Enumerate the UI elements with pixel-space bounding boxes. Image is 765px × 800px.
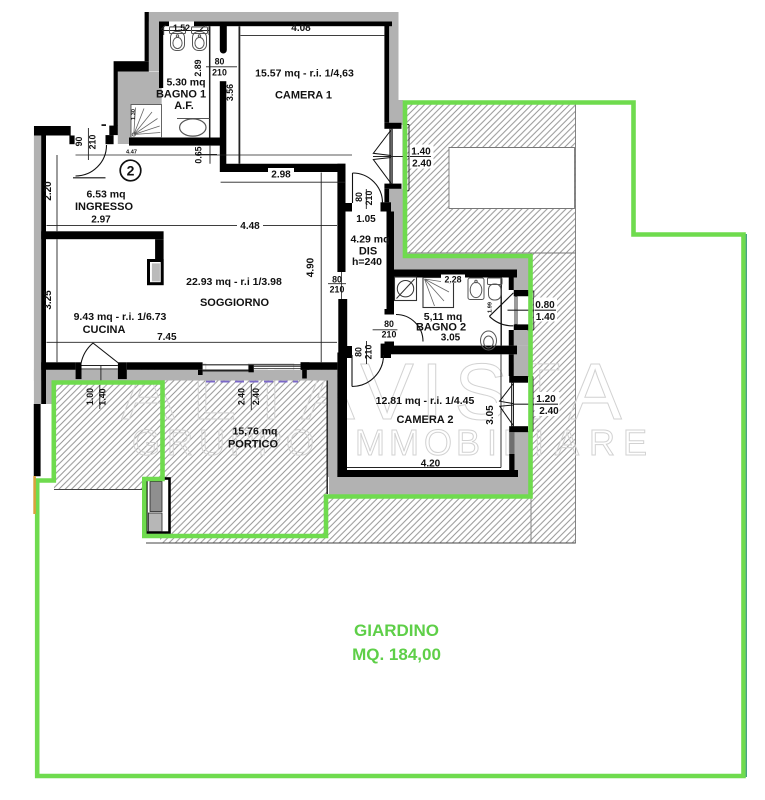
svg-text:O: O	[286, 422, 314, 463]
svg-text:1.99: 1.99	[488, 302, 494, 313]
svg-text:1.05: 1.05	[356, 214, 376, 225]
svg-text:INGRESSO: INGRESSO	[75, 201, 134, 213]
svg-text:4.29 mq: 4.29 mq	[350, 234, 389, 246]
svg-text:1.40: 1.40	[411, 147, 431, 158]
svg-text:1.30: 1.30	[131, 109, 137, 120]
svg-text:1.20: 1.20	[536, 394, 556, 405]
svg-text:3.56: 3.56	[225, 84, 235, 101]
svg-text:210: 210	[382, 329, 397, 339]
svg-text:1.00: 1.00	[85, 388, 95, 405]
svg-text:4.48: 4.48	[240, 221, 260, 232]
svg-text:2.40: 2.40	[412, 159, 432, 170]
svg-text:5.30 mq: 5.30 mq	[166, 77, 205, 89]
svg-text:h=240: h=240	[352, 256, 382, 268]
svg-text:E: E	[623, 422, 647, 463]
svg-text:15,76 mq: 15,76 mq	[233, 426, 278, 438]
svg-text:1.40: 1.40	[98, 388, 108, 405]
svg-text:0.65: 0.65	[193, 146, 203, 163]
svg-text:7.45: 7.45	[157, 332, 177, 343]
svg-text:R: R	[167, 422, 193, 463]
svg-text:2.40: 2.40	[237, 388, 247, 405]
svg-text:2.40: 2.40	[539, 406, 559, 417]
svg-text:2.97: 2.97	[91, 215, 111, 226]
svg-text:4.08: 4.08	[291, 23, 311, 34]
svg-text:I: I	[534, 422, 544, 463]
svg-text:M: M	[389, 422, 419, 463]
svg-text:90: 90	[74, 137, 84, 147]
svg-text:6.53 mq: 6.53 mq	[86, 189, 125, 201]
svg-text:3.25: 3.25	[43, 290, 54, 310]
svg-text:CAMERA 2: CAMERA 2	[396, 414, 453, 426]
svg-text:O: O	[424, 422, 452, 463]
svg-text:80: 80	[354, 347, 364, 357]
svg-text:3.05: 3.05	[441, 333, 461, 344]
svg-text:2.98: 2.98	[271, 170, 291, 181]
svg-text:12.81 mq - r.i. 1/4.45: 12.81 mq - r.i. 1/4.45	[376, 395, 475, 407]
svg-text:M: M	[355, 422, 385, 463]
svg-text:0.80: 0.80	[535, 300, 555, 311]
svg-text:80: 80	[215, 57, 225, 67]
svg-text:CAMERA 1: CAMERA 1	[275, 90, 332, 102]
svg-text:MQ. 184,00: MQ. 184,00	[352, 645, 441, 664]
svg-text:I: I	[487, 422, 497, 463]
svg-text:SOGGIORNO: SOGGIORNO	[200, 297, 270, 309]
svg-text:2.40: 2.40	[251, 388, 261, 405]
svg-text:CUCINA: CUCINA	[83, 324, 126, 336]
svg-text:A.F.: A.F.	[174, 100, 194, 112]
svg-text:210: 210	[212, 68, 227, 78]
svg-text:A: A	[555, 422, 579, 463]
svg-text:80: 80	[354, 192, 364, 202]
svg-text:B: B	[456, 422, 480, 463]
svg-text:2.28: 2.28	[444, 274, 461, 284]
svg-text:9.43 mq - r.i. 1/6.73: 9.43 mq - r.i. 1/6.73	[74, 311, 167, 323]
svg-text:4.47: 4.47	[126, 149, 137, 155]
svg-text:2.20: 2.20	[43, 181, 54, 201]
svg-text:4.20: 4.20	[421, 459, 441, 470]
svg-text:15.57 mq - r.i. 1/4,63: 15.57 mq - r.i. 1/4,63	[255, 68, 354, 80]
svg-text:G: G	[132, 422, 160, 463]
svg-text:BAGNO 1: BAGNO 1	[156, 89, 206, 101]
svg-text:210: 210	[364, 345, 374, 360]
svg-text:22.93 mq - r.i 1/3.98: 22.93 mq - r.i 1/3.98	[186, 276, 282, 288]
svg-text:1.52: 1.52	[173, 23, 190, 33]
svg-text:PORTICO: PORTICO	[228, 439, 279, 451]
svg-text:2: 2	[127, 163, 135, 179]
svg-text:R: R	[589, 422, 615, 463]
svg-text:2.89: 2.89	[193, 59, 203, 76]
svg-text:210: 210	[364, 191, 374, 206]
svg-text:3.05: 3.05	[485, 405, 496, 425]
svg-text:80: 80	[332, 274, 342, 284]
svg-text:U: U	[199, 422, 225, 463]
svg-text:210: 210	[87, 135, 97, 150]
svg-text:4.90: 4.90	[305, 257, 316, 277]
svg-text:210: 210	[330, 285, 345, 295]
svg-text:1.40: 1.40	[536, 312, 556, 323]
svg-text:GIARDINO: GIARDINO	[354, 621, 439, 640]
svg-text:80: 80	[384, 319, 394, 329]
